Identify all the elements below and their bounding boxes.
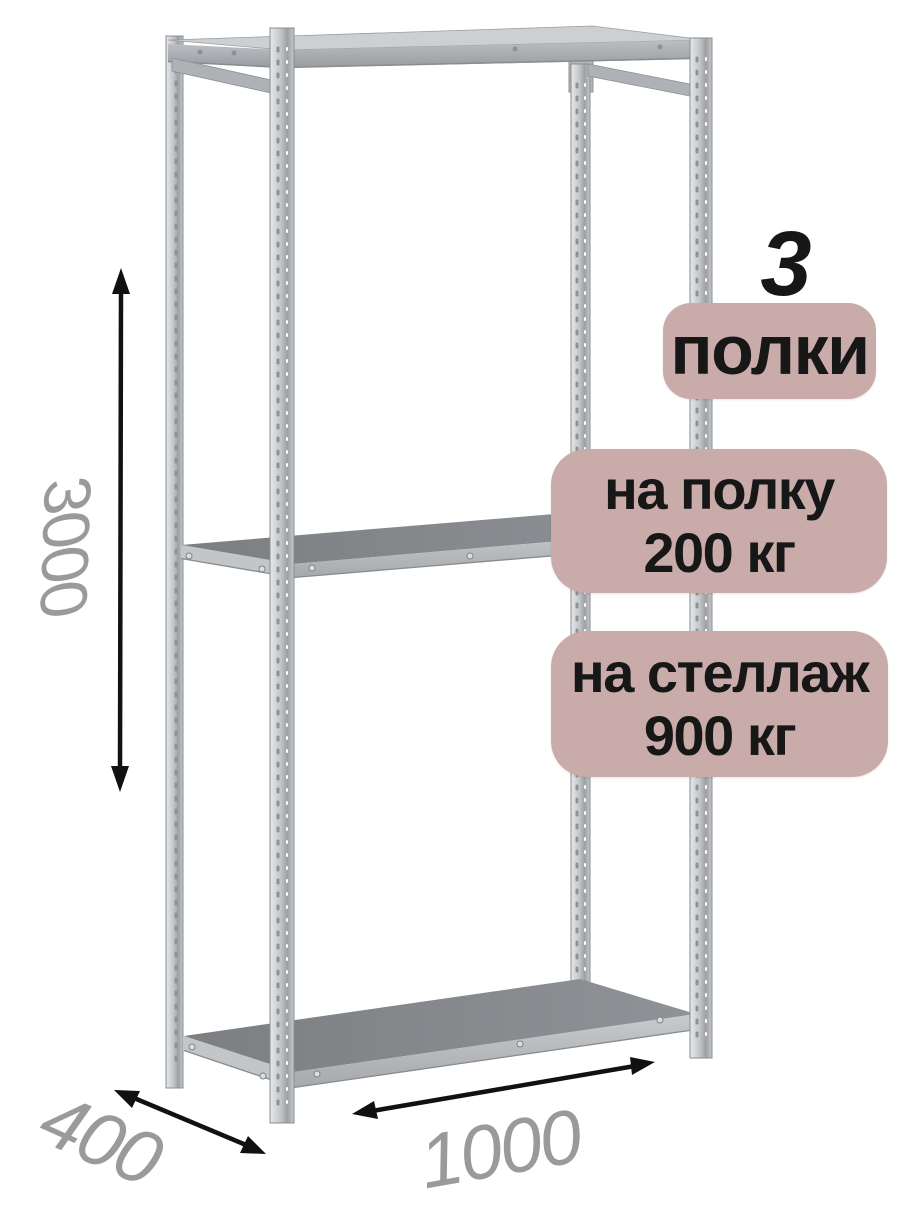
per-rack-load-label: на стеллаж bbox=[571, 641, 868, 704]
height-arrow bbox=[111, 268, 130, 792]
per-shelf-load-value: 200 кг bbox=[643, 521, 794, 584]
per-rack-load-badge: на стеллаж 900 кг bbox=[551, 631, 888, 777]
height-dimension-label: 3000 bbox=[30, 465, 102, 625]
shelf-count: 3 bbox=[760, 218, 811, 310]
per-shelf-load-badge: на полку 200 кг bbox=[551, 449, 887, 593]
top-shelf bbox=[168, 26, 706, 98]
shelves-badge-label: полки bbox=[670, 311, 868, 390]
shelves-badge: полки bbox=[663, 303, 876, 399]
top-side-rail-right bbox=[588, 64, 700, 98]
per-shelf-load-label: на полку bbox=[604, 458, 834, 521]
rack-post-back-left bbox=[166, 36, 183, 1088]
shelving-product-card: 3000 400 1000 3 полки на полку 200 кг на… bbox=[0, 0, 900, 1200]
bottom-shelf bbox=[184, 979, 696, 1088]
rack-post-front-left bbox=[270, 28, 294, 1123]
per-rack-load-value: 900 кг bbox=[644, 704, 795, 767]
shelving-rack-illustration bbox=[0, 0, 900, 1200]
